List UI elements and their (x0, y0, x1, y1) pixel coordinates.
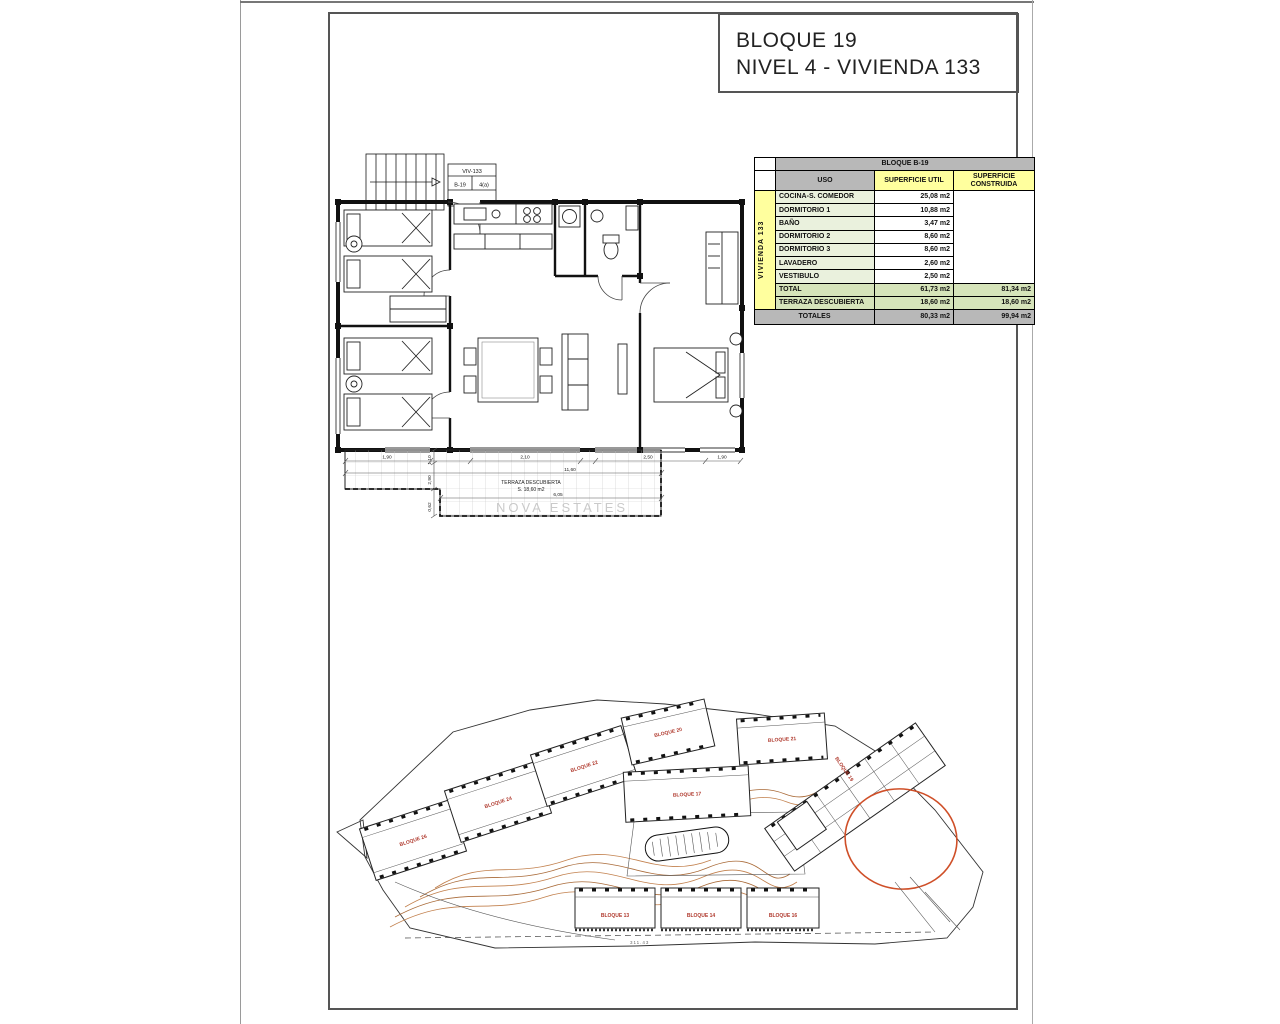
unit-tag-block: B-19 (454, 183, 466, 189)
page-edge-top (240, 1, 1034, 3)
svg-text:2,50: 2,50 (643, 455, 653, 461)
col-header-constr: SUPERFICIE CONSTRUIDA (954, 171, 1035, 191)
svg-text:1,90: 1,90 (717, 455, 727, 461)
site-detail-lines (895, 877, 960, 932)
constr-empty-cell (954, 191, 1035, 284)
terrace-label: TERRAZA DESCUBIERTA (501, 480, 561, 486)
bed (344, 394, 432, 430)
furniture (344, 204, 742, 430)
floor-plan: VIV-133 B-19 4(a) 80,33 (330, 138, 760, 533)
building: BLOQUE 20 (621, 699, 715, 765)
sofa (562, 334, 588, 410)
svg-text:BLOQUE 14: BLOQUE 14 (687, 913, 716, 919)
site-plan: BLOQUE 26 BLOQUE 24 BLOQUE 22 BLOQUE 20 (335, 692, 1015, 972)
dining-table (464, 338, 552, 402)
page-edge-right (1032, 0, 1033, 1024)
elevation-label: 311.43 (630, 940, 649, 945)
svg-text:1,90: 1,90 (382, 455, 392, 461)
svg-text:BLOQUE 13: BLOQUE 13 (601, 913, 630, 919)
bed (344, 256, 432, 292)
svg-text:2,90: 2,90 (427, 475, 433, 485)
watermark: NOVA ESTATES (496, 500, 666, 515)
svg-text:6,05: 6,05 (553, 492, 563, 498)
table-row-total: TOTAL 61,73 m2 81,34 m2 (755, 283, 1035, 296)
table-row: VIVIENDA 133 COCINA-S. COMEDOR 25,08 m2 (755, 191, 1035, 204)
laundry (559, 206, 580, 227)
building: BLOQUE 22 (530, 726, 637, 807)
unit-tag-level: 4(a) (479, 183, 489, 189)
table-row-terraza: TERRAZA DESCUBIERTA 18,60 m2 18,60 m2 (755, 296, 1035, 309)
title-block: BLOQUE 19 NIVEL 4 - VIVIENDA 133 (718, 13, 1019, 93)
building: BLOQUE 14 (661, 888, 741, 930)
pool (644, 825, 731, 862)
areas-table: BLOQUE B-19 USO SUPERFICIE UTIL SUPERFIC… (754, 157, 1035, 325)
building: BLOQUE 24 (444, 762, 551, 843)
table-row-totales: TOTALES 80,33 m2 99,94 m2 (755, 310, 1035, 325)
building: BLOQUE 17 (623, 766, 750, 822)
main-bedroom (654, 232, 742, 417)
building: BLOQUE 26 (359, 800, 466, 881)
building: BLOQUE 21 (737, 713, 828, 765)
svg-text:11,60: 11,60 (564, 467, 576, 473)
svg-text:0,62: 0,62 (427, 502, 433, 512)
plan-sheet: BLOQUE 19 NIVEL 4 - VIVIENDA 133 BLOQUE … (0, 0, 1280, 1024)
terrace-area-label: S. 18,60 m2 (518, 487, 545, 493)
title-line1: BLOQUE 19 (736, 27, 1017, 54)
col-header-uso: USO (776, 171, 875, 191)
bathroom (591, 206, 638, 259)
kitchen (454, 204, 552, 249)
bed (344, 338, 432, 374)
title-line2: NIVEL 4 - VIVIENDA 133 (736, 54, 1017, 81)
table-block-header: BLOQUE B-19 (776, 158, 1035, 171)
svg-text:1,10: 1,10 (427, 455, 433, 465)
unit-tag-title: VIV-133 (462, 169, 482, 175)
building: BLOQUE 16 (747, 888, 819, 930)
building: BLOQUE 13 (575, 888, 655, 930)
col-header-util: SUPERFICIE UTIL (875, 171, 954, 191)
property-line (405, 932, 935, 938)
svg-text:BLOQUE 16: BLOQUE 16 (769, 913, 798, 919)
page-edge-left (240, 0, 241, 1024)
svg-text:2,10: 2,10 (520, 455, 530, 461)
tv-cabinet (618, 344, 627, 394)
